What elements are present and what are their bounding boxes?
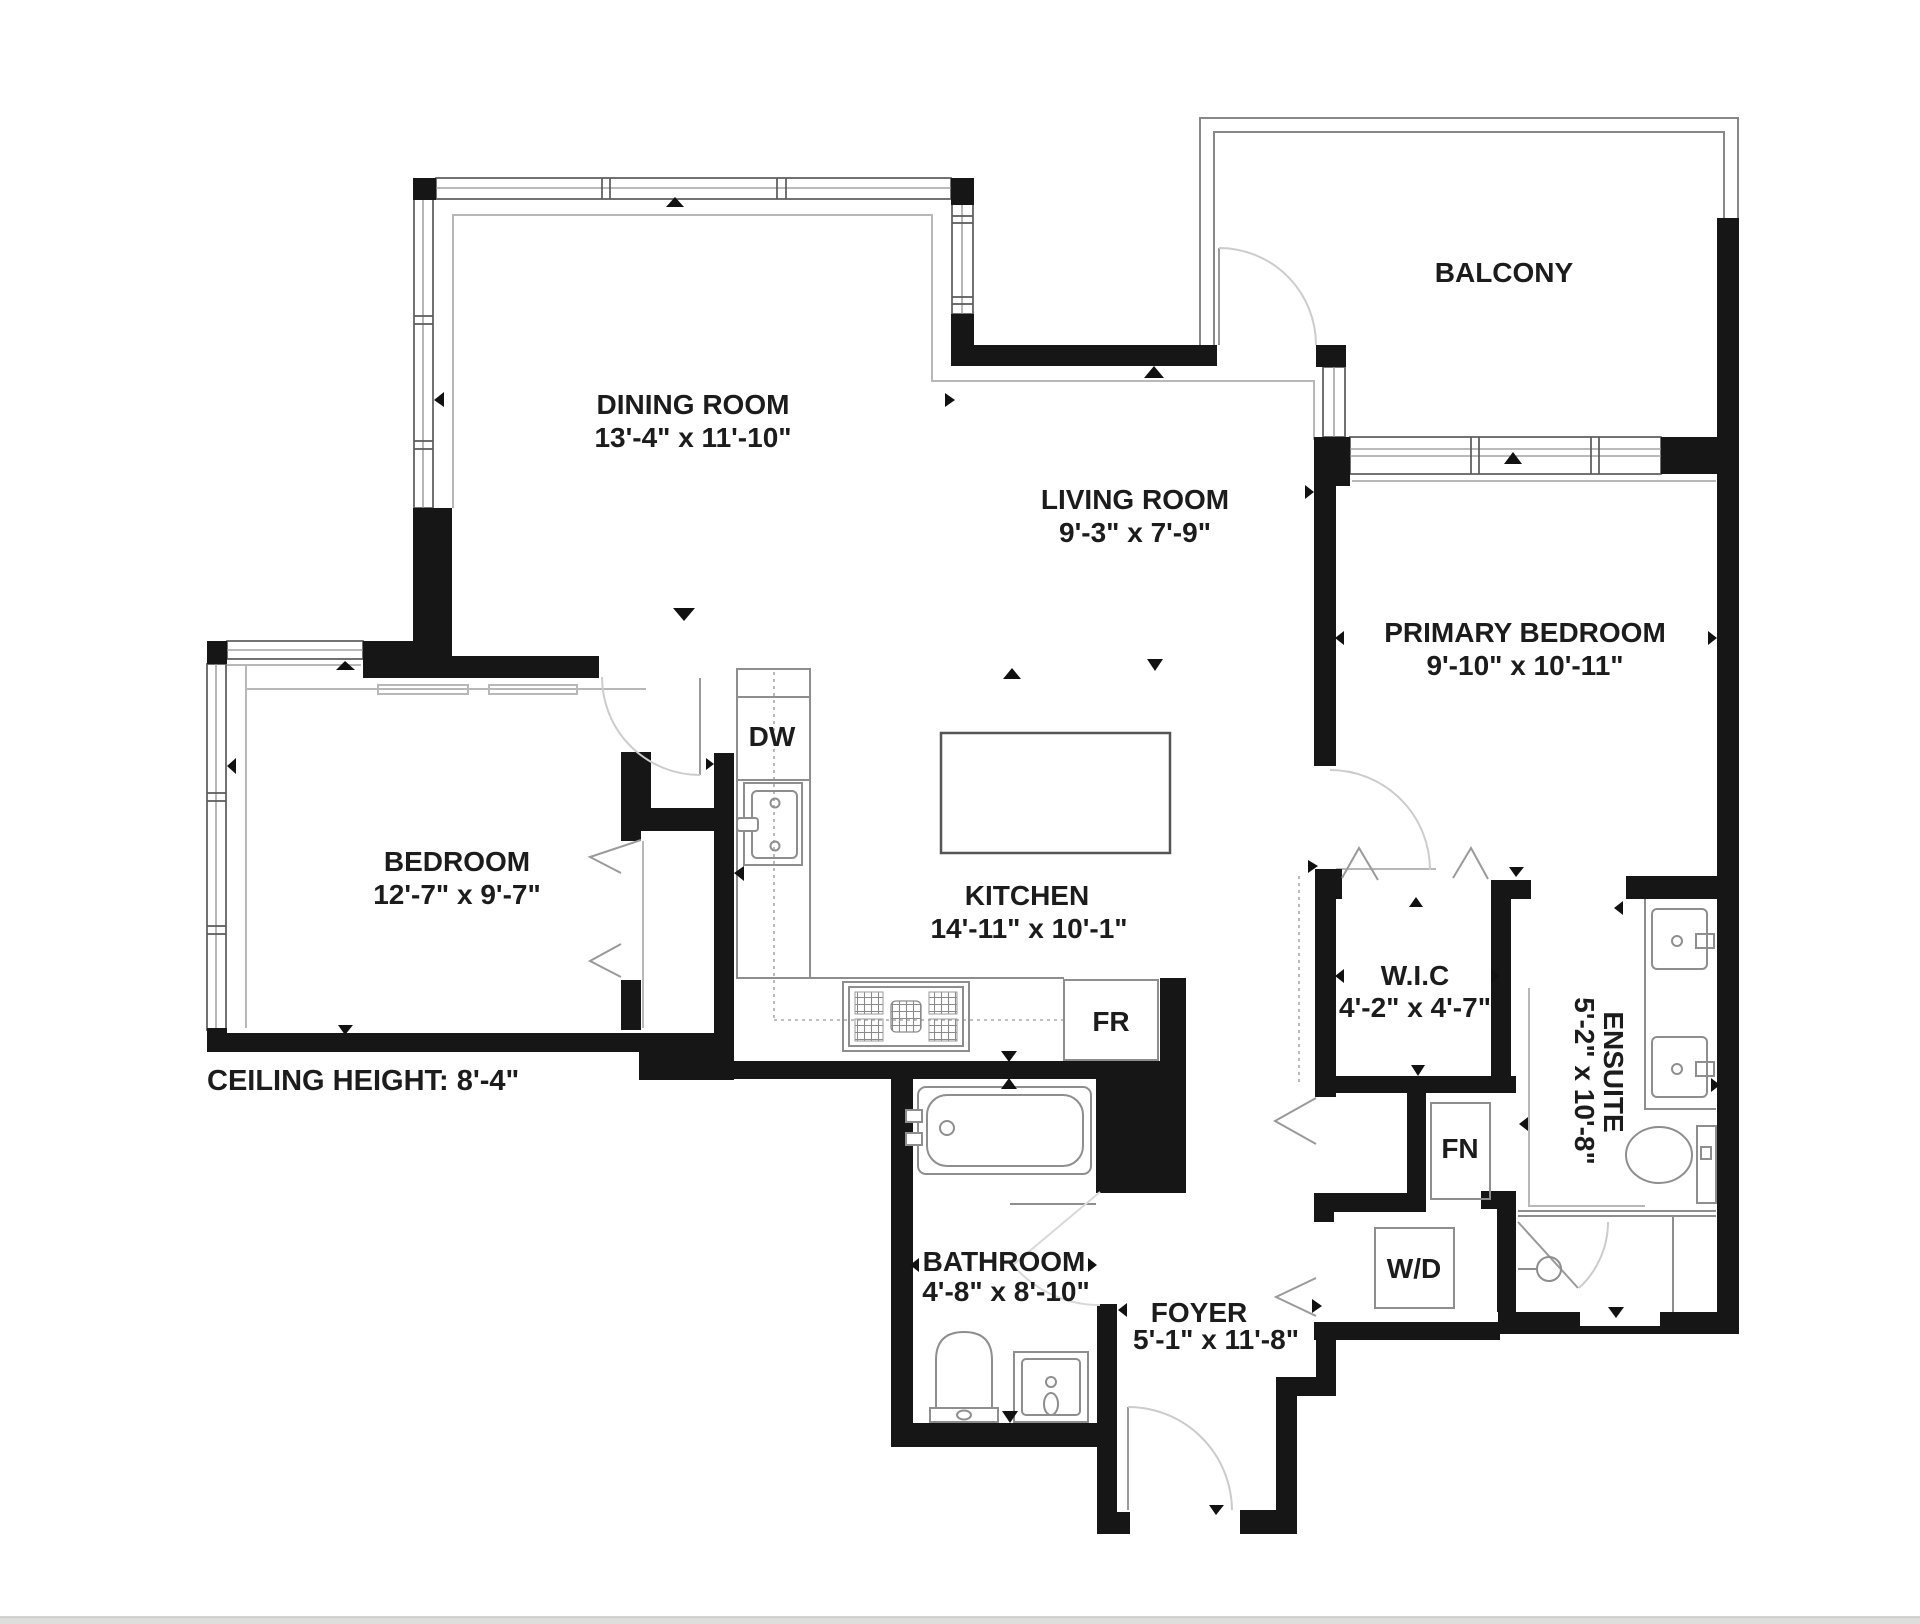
svg-text:BALCONY: BALCONY	[1435, 257, 1574, 288]
svg-text:4'-2" x 4'-7": 4'-2" x 4'-7"	[1339, 992, 1491, 1023]
svg-text:W.I.C: W.I.C	[1381, 960, 1449, 991]
svg-text:FN: FN	[1441, 1133, 1478, 1164]
svg-text:PRIMARY BEDROOM: PRIMARY BEDROOM	[1384, 617, 1666, 648]
svg-text:FR: FR	[1092, 1006, 1129, 1037]
svg-text:DINING ROOM: DINING ROOM	[597, 389, 790, 420]
svg-text:4'-8" x 8'-10": 4'-8" x 8'-10"	[922, 1276, 1090, 1307]
svg-text:9'-10" x 10'-11": 9'-10" x 10'-11"	[1426, 650, 1623, 681]
svg-text:5'-2" x 10'-8": 5'-2" x 10'-8"	[1569, 997, 1600, 1165]
svg-text:13'-4" x 11'-10": 13'-4" x 11'-10"	[594, 422, 791, 453]
svg-text:5'-1" x 11'-8": 5'-1" x 11'-8"	[1133, 1324, 1299, 1355]
svg-text:12'-7" x 9'-7": 12'-7" x 9'-7"	[373, 879, 541, 910]
svg-text:BATHROOM: BATHROOM	[923, 1246, 1086, 1277]
svg-text:BEDROOM: BEDROOM	[384, 846, 530, 877]
svg-text:KITCHEN: KITCHEN	[965, 880, 1089, 911]
svg-text:DW: DW	[749, 721, 796, 752]
svg-text:W/D: W/D	[1387, 1253, 1441, 1284]
svg-text:ENSUITE: ENSUITE	[1598, 1011, 1629, 1132]
svg-text:LIVING ROOM: LIVING ROOM	[1041, 484, 1229, 515]
svg-text:14'-11" x 10'-1": 14'-11" x 10'-1"	[930, 913, 1127, 944]
svg-text:CEILING HEIGHT: 8'-4": CEILING HEIGHT: 8'-4"	[207, 1065, 519, 1097]
svg-text:9'-3" x 7'-9": 9'-3" x 7'-9"	[1059, 517, 1211, 548]
